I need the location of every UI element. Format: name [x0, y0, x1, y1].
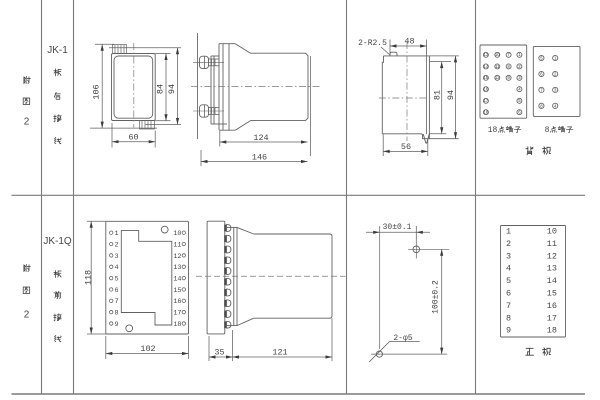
svg-text:17: 17: [173, 310, 181, 318]
svg-text:124: 124: [253, 133, 268, 143]
svg-text:146: 146: [252, 152, 267, 162]
svg-text:3: 3: [506, 251, 511, 261]
svg-text:30±0.1: 30±0.1: [383, 223, 412, 232]
svg-text:18: 18: [488, 126, 498, 135]
svg-text:81: 81: [433, 90, 443, 100]
svg-text:15: 15: [484, 75, 489, 80]
svg-text:1: 1: [506, 227, 511, 237]
svg-text:94: 94: [167, 84, 177, 94]
svg-text:14: 14: [173, 276, 181, 284]
svg-text:2: 2: [506, 239, 511, 249]
svg-text:106: 106: [92, 84, 102, 99]
svg-text:10: 10: [495, 52, 500, 57]
svg-text:5: 5: [506, 276, 511, 286]
svg-text:18: 18: [173, 321, 181, 329]
svg-text:16: 16: [173, 298, 181, 306]
svg-text:118: 118: [84, 270, 94, 285]
svg-text:8: 8: [506, 313, 511, 323]
svg-text:8: 8: [545, 126, 550, 135]
svg-text:2: 2: [115, 241, 119, 249]
svg-text:13: 13: [484, 52, 489, 57]
svg-text:15: 15: [547, 289, 557, 299]
svg-text:121: 121: [272, 348, 287, 358]
svg-text:35: 35: [214, 348, 224, 358]
svg-text:8: 8: [115, 310, 119, 318]
svg-text:4: 4: [115, 264, 119, 272]
svg-text:12: 12: [495, 75, 500, 80]
svg-text:12: 12: [547, 251, 557, 261]
svg-text:9: 9: [506, 326, 511, 336]
svg-text:10: 10: [547, 227, 557, 237]
svg-text:11: 11: [173, 241, 181, 249]
svg-text:6: 6: [506, 289, 511, 299]
svg-text:5: 5: [115, 276, 119, 284]
svg-text:56: 56: [401, 142, 411, 152]
svg-text:JK-1: JK-1: [47, 45, 68, 56]
svg-text:JK-1Q: JK-1Q: [43, 236, 72, 247]
svg-text:7: 7: [506, 301, 511, 311]
svg-text:13: 13: [547, 264, 557, 274]
svg-text:15: 15: [173, 287, 181, 295]
svg-text:13: 13: [173, 264, 181, 272]
svg-text:94: 94: [446, 90, 456, 100]
svg-text:1: 1: [115, 230, 119, 238]
svg-text:48: 48: [404, 37, 414, 47]
svg-text:12: 12: [173, 253, 181, 261]
svg-text:14: 14: [484, 64, 489, 69]
svg-text:16: 16: [547, 301, 557, 311]
svg-text:2: 2: [24, 117, 30, 128]
svg-text:18: 18: [484, 110, 489, 115]
svg-text:7: 7: [115, 298, 119, 306]
svg-text:11: 11: [547, 239, 557, 249]
svg-text:60: 60: [128, 133, 138, 143]
svg-text:10: 10: [173, 230, 181, 238]
svg-text:2: 2: [24, 310, 30, 321]
svg-text:17: 17: [547, 313, 557, 323]
svg-text:100±0.2: 100±0.2: [432, 280, 441, 314]
svg-text:14: 14: [547, 276, 557, 286]
svg-text:102: 102: [140, 344, 155, 354]
svg-text:6: 6: [115, 287, 119, 295]
svg-text:9: 9: [115, 321, 119, 329]
svg-text:16: 16: [484, 87, 489, 92]
svg-text:17: 17: [484, 98, 489, 103]
svg-text:11: 11: [495, 64, 500, 69]
svg-text:4: 4: [506, 264, 511, 274]
svg-text:84: 84: [155, 84, 165, 94]
svg-text:3: 3: [115, 253, 119, 261]
svg-text:18: 18: [547, 326, 557, 336]
svg-text:2-R2.5: 2-R2.5: [358, 39, 387, 48]
